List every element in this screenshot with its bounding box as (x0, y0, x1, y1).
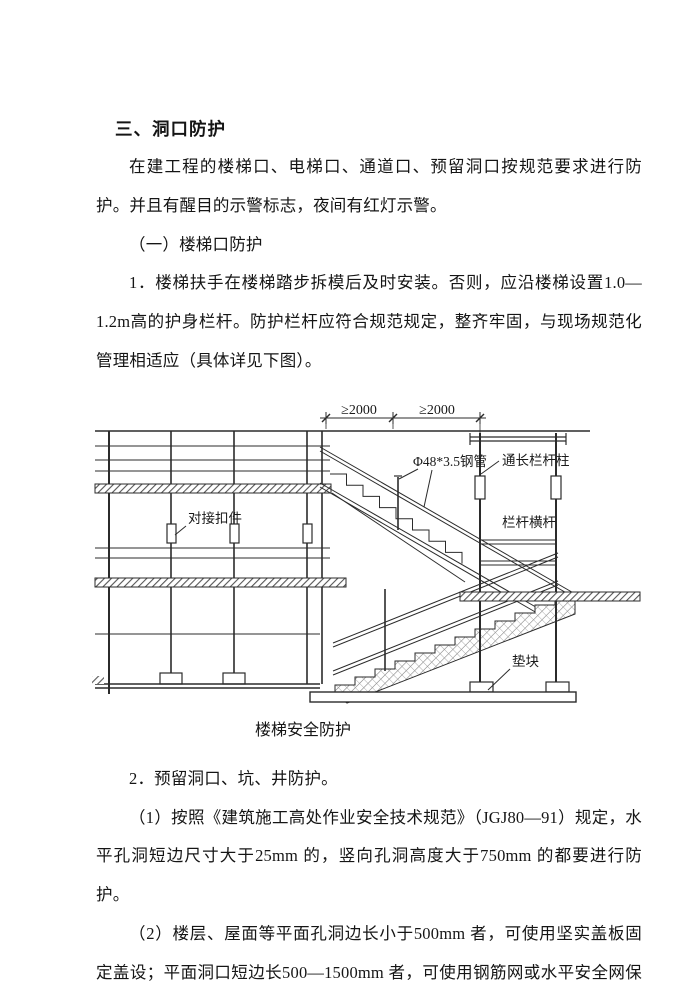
paragraph-handrail: 1．楼梯扶手在楼梯踏步拆模后及时安装。否则，应沿楼梯设置1.0—1.2m高的护身… (96, 264, 642, 380)
section-heading: 三、洞口防护 (115, 0, 642, 142)
label-rail-bar: 栏杆横杆 (502, 515, 556, 530)
document-page: 三、洞口防护 在建工程的楼梯口、电梯口、通道口、预留洞口按规范要求进行防护。并且… (0, 0, 700, 990)
document-content: 三、洞口防护 在建工程的楼梯口、电梯口、通道口、预留洞口按规范要求进行防护。并且… (96, 0, 642, 990)
label-rail-post: 通长栏杆柱 (502, 453, 570, 468)
label-pad: 垫块 (512, 654, 540, 669)
label-coupler: 对接扣件 (188, 510, 242, 526)
paragraph-spec-2: （2）楼层、屋面等平面孔洞边长小于500mm 者，可使用坚实盖板固定盖设；平面洞… (96, 915, 642, 990)
scaffold-frame (92, 431, 346, 694)
figure-caption: 楼梯安全防护 (255, 716, 642, 746)
subheading-stair-protection: （一）楼梯口防护 (96, 226, 642, 265)
dimension-label-right: ≥2000 (419, 403, 455, 418)
paragraph-openings: 2．预留洞口、坑、井防护。 (96, 760, 642, 799)
paragraph-intro: 在建工程的楼梯口、电梯口、通道口、预留洞口按规范要求进行防护。并且有醒目的示警标… (96, 148, 642, 226)
dimension-label-left: ≥2000 (341, 403, 377, 418)
paragraph-spec-1: （1）按照《建筑施工高处作业安全技术规范》（JGJ80—91）规定，水平孔洞短边… (96, 799, 642, 915)
stair-protection-diagram: ≥2000 ≥2000 (88, 403, 648, 709)
figure-stair-protection: ≥2000 ≥2000 (88, 403, 642, 746)
label-steel-pipe: Φ48*3.5钢管 (413, 454, 487, 469)
